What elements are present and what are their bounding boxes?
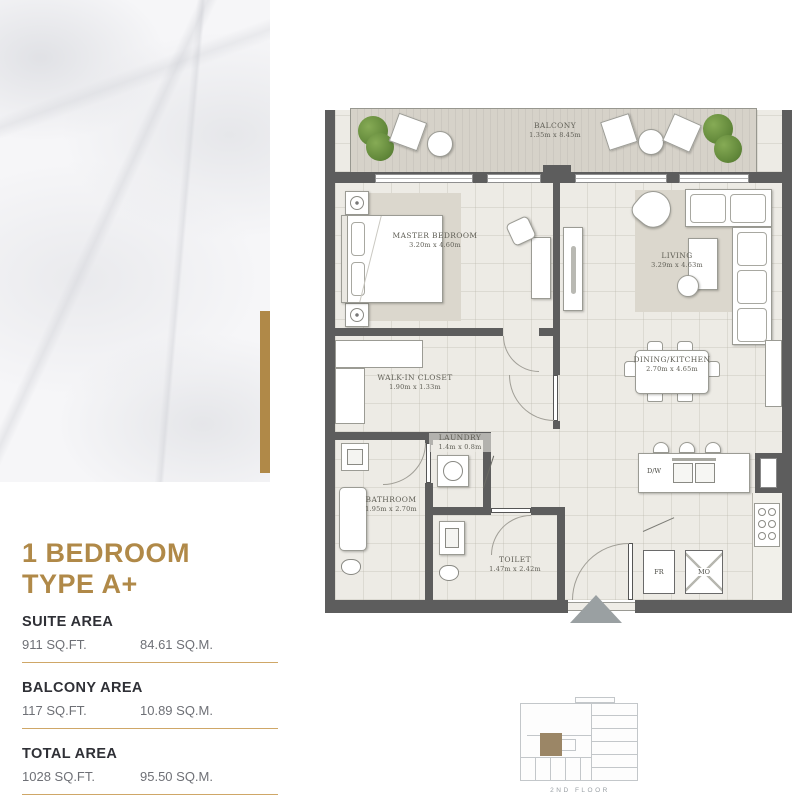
room-dims: 1.4m x 0.8m [429,443,491,452]
area-section-suite: SUITE AREA 911 SQ.FT. 84.61 SQ.M. [22,614,278,663]
wall-kitchen-pier [755,453,782,493]
wall-ledge [765,340,782,407]
cabinet [760,458,777,488]
basin-icon [347,449,363,465]
desk [531,237,551,299]
pillow [351,222,365,256]
floor-plan: BALCONY 1.35m x 8.45m MASTER BEDR [325,103,792,613]
fridge-label: FR [654,568,663,576]
room-label-dining-kitchen: DINING/KITCHEN 2.70m x 4.65m [625,355,719,374]
wall-bedroom-living [553,183,560,375]
wall-toilet-top [425,507,491,515]
powder-sink [439,521,465,555]
washer-drum-icon [443,461,463,481]
area-section-total: TOTAL AREA 1028 SQ.FT. 95.50 SQ.M. [22,746,278,795]
sofa-cushion [737,232,767,266]
stove [754,503,780,547]
room-label-bathroom: BATHROOM 1.95m x 2.70m [353,495,429,514]
balcony-deck [350,108,757,172]
lamp-icon [350,308,364,322]
wall-bedroom-closet [539,328,560,336]
bar-stool [679,442,695,453]
page-title-line2: TYPE A+ [22,569,190,600]
room-dims: 2.70m x 4.65m [625,365,719,374]
burner-icon [758,508,766,516]
sofa-cushion [737,308,767,342]
room-label-living: LIVING 3.29m x 4.63m [635,251,719,270]
room-dims: 1.35m x 8.45m [485,131,625,140]
burner-icon [768,532,776,540]
room-label-walk-in-closet: WALK-IN CLOSET 1.90m x 1.33m [367,373,463,392]
room-dims: 3.20m x 4.60m [380,241,490,250]
room-dims: 1.47m x 2.42m [475,565,555,574]
room-name: WALK-IN CLOSET [367,373,463,383]
bar-stool [653,442,669,453]
gold-divider [22,794,278,795]
wc-icon [341,559,361,575]
wall-bottom-left [325,600,568,613]
burner-icon [758,520,766,528]
wall-stub [553,421,560,429]
sofa-cushion [730,194,766,223]
keyplan-line [580,757,581,781]
page-title-line1: 1 BEDROOM [22,538,190,569]
total-area-sqm: 95.50 SQ.M. [140,769,213,784]
keyplan-outline [575,697,615,703]
washing-machine [437,455,469,487]
microwave-oven: MO [685,550,723,594]
keyplan-line [565,757,566,781]
room-dims: 3.29m x 4.63m [635,261,719,270]
keyplan-line [535,757,536,781]
suite-area-label: SUITE AREA [22,614,278,630]
basin-icon [445,528,459,548]
window [575,174,667,183]
wall-toilet-right [557,507,565,600]
sink-basin [673,463,693,483]
sofa-cushion [737,270,767,304]
key-plan: 2ND FLOOR [505,695,655,803]
balcony-side-slab [335,110,350,172]
room-label-laundry: LAUNDRY 1.4m x 0.8m [429,433,491,452]
window [487,174,541,183]
balcony-area-sqft: 117 SQ.FT. [22,703,140,718]
room-name: LAUNDRY [429,433,491,443]
tv-console [563,227,583,311]
dishwasher-label: D/W [647,467,661,475]
window [375,174,473,183]
room-label-master-bedroom: MASTER BEDROOM 3.20m x 4.60m [380,231,490,250]
closet-shelf [335,340,423,368]
tv-icon [571,246,576,294]
keyplan-line [591,728,638,729]
area-summary: SUITE AREA 911 SQ.FT. 84.61 SQ.M. BALCON… [22,614,278,808]
gold-accent-bar [260,311,270,473]
keyplan-line [591,767,638,768]
sofa-top [685,189,772,227]
total-area-sqft: 1028 SQ.FT. [22,769,140,784]
wall-bottom-right [635,600,792,613]
area-section-balcony: BALCONY AREA 117 SQ.FT. 10.89 SQ.M. [22,680,278,729]
wall-bedroom-closet [335,328,503,336]
page-title: 1 BEDROOM TYPE A+ [22,538,190,600]
room-name: TOILET [475,555,555,565]
keyplan-line [550,757,551,781]
balcony-table [638,129,664,155]
window [679,174,749,183]
bed [341,215,443,303]
keyplan-line [591,754,638,755]
suite-area-sqft: 911 SQ.FT. [22,637,140,652]
sofa-right [732,227,772,345]
keyplan-line [591,715,638,716]
wc-icon [439,565,459,581]
wall-left [325,110,335,613]
room-name: BATHROOM [353,495,429,505]
microwave-label: MO [696,568,712,576]
lamp-icon [350,196,364,210]
side-table [677,275,699,297]
nightstand [345,303,369,327]
keyplan-unit-highlight [540,733,562,756]
gold-divider [22,728,278,729]
bathroom-sink [341,443,369,471]
burner-icon [758,532,766,540]
marble-decor-image [0,0,270,482]
room-name: DINING/KITCHEN [625,355,719,365]
room-name: MASTER BEDROOM [380,231,490,241]
balcony-area-label: BALCONY AREA [22,680,278,696]
room-name: BALCONY [485,121,625,131]
wall-right [782,110,792,613]
faucet-icon [672,458,716,461]
room-label-balcony: BALCONY 1.35m x 8.45m [485,121,625,140]
toilet-door [491,508,531,513]
burner-icon [768,520,776,528]
room-name: LIVING [635,251,719,261]
room-label-toilet: TOILET 1.47m x 2.42m [475,555,555,574]
balcony-side-slab [757,110,782,172]
gold-divider [22,662,278,663]
floorplan-brochure-page: 1 BEDROOM TYPE A+ SUITE AREA 911 SQ.FT. … [0,0,800,808]
keyplan-floor-label: 2ND FLOOR [505,787,655,794]
balcony-table [427,131,453,157]
kitchen-island: D/W [638,453,750,493]
wall-pier [543,165,571,183]
room-dims: 1.95m x 2.70m [353,505,429,514]
plant-icon [714,135,742,163]
nightstand [345,191,369,215]
entrance-arrow-icon [570,595,622,623]
headboard [342,216,348,302]
fridge: FR [643,550,675,594]
balcony-chair [389,113,427,151]
keyplan-line [591,741,638,742]
balcony-chair [662,113,702,153]
suite-area-sqm: 84.61 SQ.M. [140,637,213,652]
sofa-cushion [690,194,726,223]
total-area-label: TOTAL AREA [22,746,278,762]
bar-stool [705,442,721,453]
burner-icon [768,508,776,516]
keyplan-line [560,739,576,751]
closet-shelf [335,368,365,424]
room-dims: 1.90m x 1.33m [367,383,463,392]
sink-basin [695,463,715,483]
balcony-area-sqm: 10.89 SQ.M. [140,703,213,718]
